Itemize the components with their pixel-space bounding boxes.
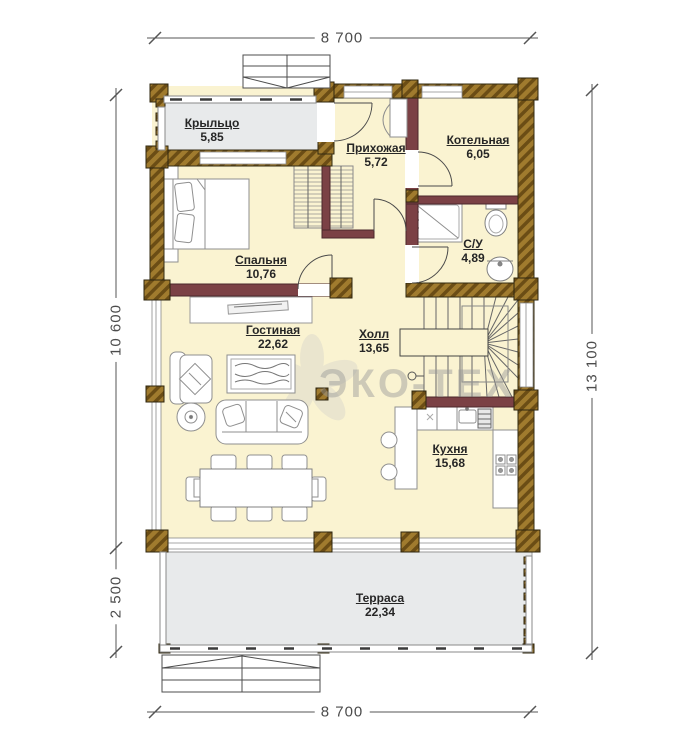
- room-label-living: Гостиная 22,62: [246, 323, 300, 351]
- toilet-symbol: [485, 201, 507, 236]
- room-area: 13,65: [359, 341, 389, 355]
- room-area: 5,85: [185, 130, 240, 144]
- terrace-floor: [160, 552, 532, 645]
- room-area: 22,62: [246, 337, 300, 351]
- room-name: Спальня: [235, 253, 287, 267]
- room-label-bedroom: Спальня 10,76: [235, 253, 287, 281]
- room-name: Прихожая: [346, 141, 405, 155]
- armchair-symbol: [170, 352, 212, 404]
- room-label-terrace: Терраса 22,34: [356, 591, 404, 619]
- round-table-symbol: [177, 403, 205, 431]
- room-label-hall: Холл 13,65: [359, 327, 389, 355]
- room-area: 4,89: [461, 251, 484, 265]
- room-name: Котельная: [447, 133, 510, 147]
- entry-steps: [243, 55, 330, 88]
- room-label-porch: Крыльцо 5,85: [185, 116, 240, 144]
- room-label-kitchen: Кухня 15,68: [432, 442, 467, 470]
- dim-bottom: 8 700: [315, 704, 370, 721]
- sofa-symbol: [216, 400, 308, 444]
- sink-symbol: [487, 257, 513, 281]
- room-name: Гостиная: [246, 323, 300, 337]
- dim-left-terrace: 2 500: [108, 570, 125, 625]
- room-label-hallway: Прихожая 5,72: [346, 141, 405, 169]
- room-name: Холл: [359, 327, 389, 341]
- floor-plan: Крыльцо 5,85 Прихожая 5,72 Котельная 6,0…: [0, 0, 700, 754]
- room-name: С/У: [461, 237, 484, 251]
- room-area: 5,72: [346, 155, 405, 169]
- watermark-text: ЭКО-ТЕХ: [319, 362, 515, 407]
- room-name: Крыльцо: [185, 116, 240, 130]
- room-area: 22,34: [356, 605, 404, 619]
- bed-symbol: [160, 166, 249, 262]
- room-name: Терраса: [356, 591, 404, 605]
- room-label-boiler: Котельная 6,05: [447, 133, 510, 161]
- terrace-steps: [162, 655, 320, 692]
- tv-stand-symbol: [190, 297, 312, 323]
- dim-left-main: 10 600: [108, 298, 125, 362]
- console-symbol: [227, 355, 295, 393]
- shower-symbol: [414, 202, 462, 242]
- room-area: 6,05: [447, 147, 510, 161]
- room-area: 15,68: [432, 456, 467, 470]
- room-area: 10,76: [235, 267, 287, 281]
- room-name: Кухня: [432, 442, 467, 456]
- dim-right: 13 100: [584, 334, 601, 398]
- room-label-bathroom: С/У 4,89: [461, 237, 484, 265]
- dim-top: 8 700: [315, 30, 370, 47]
